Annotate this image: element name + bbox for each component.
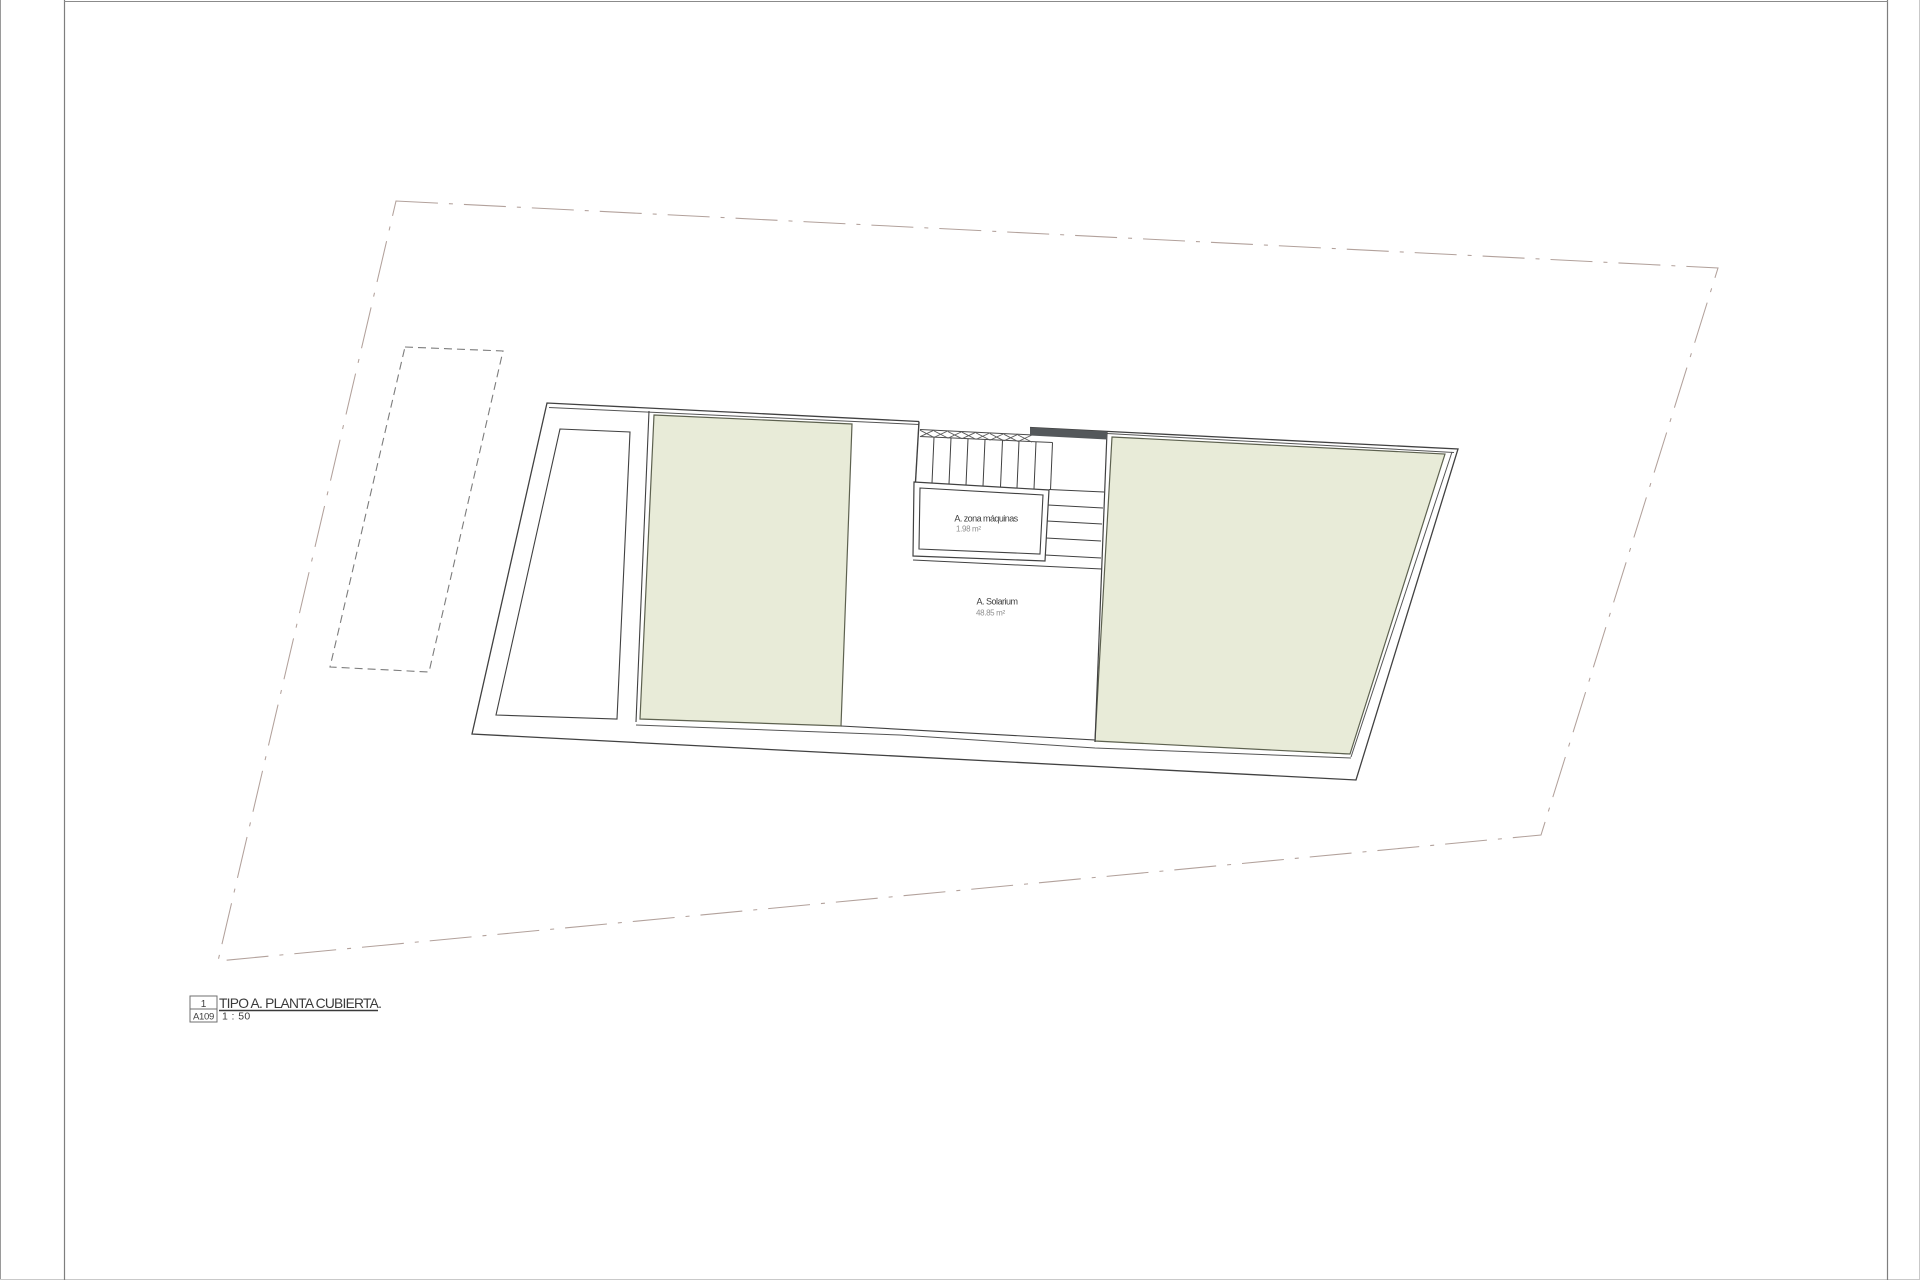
svg-text:A109: A109 [193,1012,214,1023]
svg-text:A. zona máquinas: A. zona máquinas [954,514,1018,524]
svg-text:TIPO A. PLANTA CUBIERTA.: TIPO A. PLANTA CUBIERTA. [219,996,381,1011]
svg-text:A. Solarium: A. Solarium [976,597,1017,607]
svg-text:1.98 m²: 1.98 m² [956,525,981,534]
svg-text:1: 1 [201,999,207,1010]
svg-text:48.85 m²: 48.85 m² [976,609,1005,618]
svg-text:1 : 50: 1 : 50 [222,1011,251,1023]
